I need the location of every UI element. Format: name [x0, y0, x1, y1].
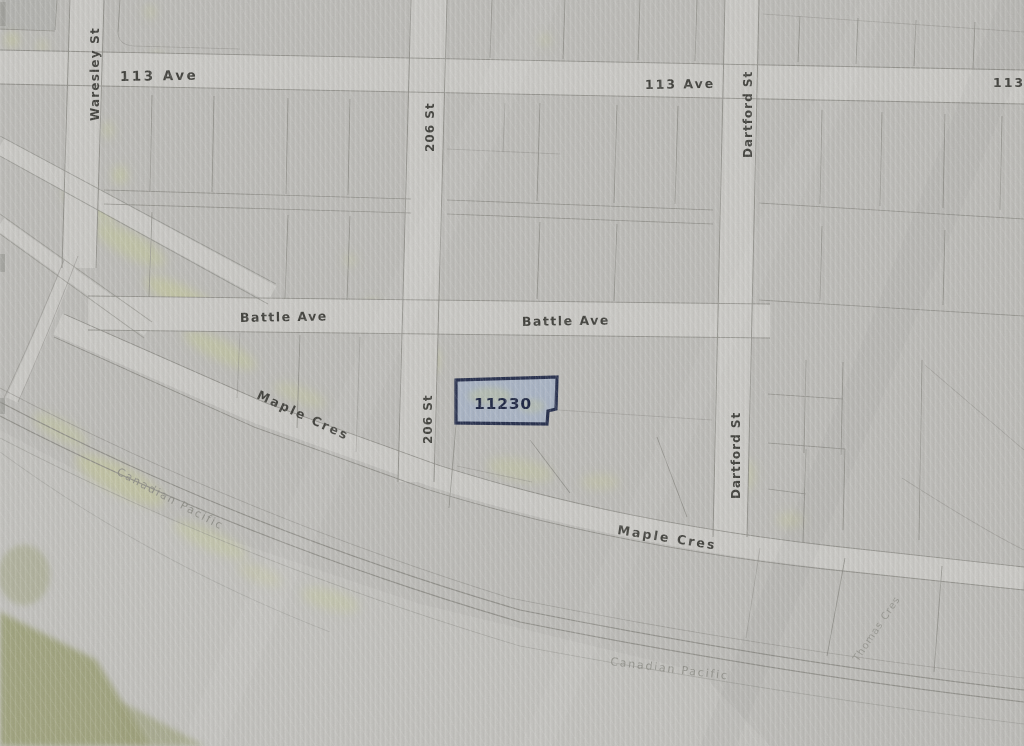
plat-map-photo[interactable]: 11230 113 Ave 113 Ave 113 Waresley St 20… — [0, 0, 1024, 746]
map-canvas: 11230 113 Ave 113 Ave 113 Waresley St 20… — [0, 0, 1024, 746]
photo-grain — [0, 0, 1024, 746]
